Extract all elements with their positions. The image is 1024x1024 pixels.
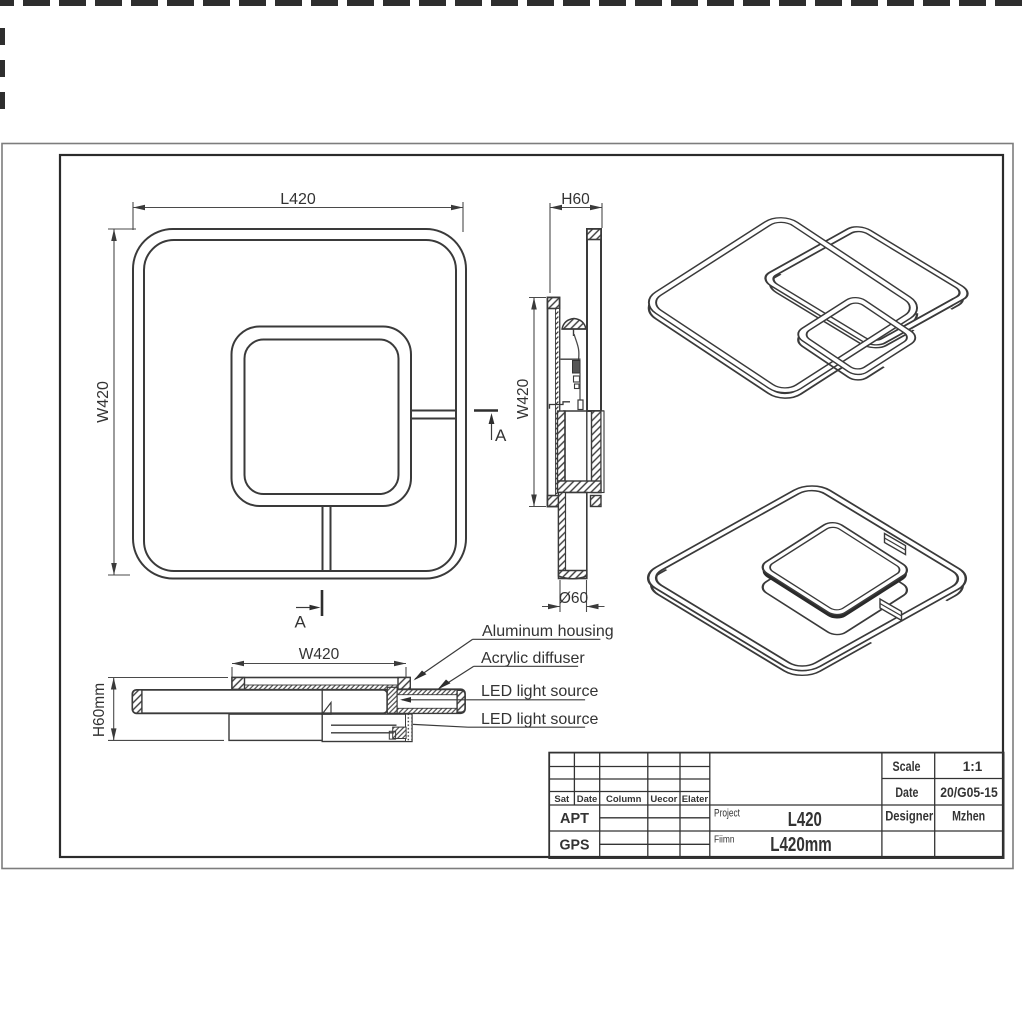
svg-text:Acrylic diffuser: Acrylic diffuser xyxy=(481,650,585,667)
svg-text:Column: Column xyxy=(606,794,642,805)
svg-text:Aluminum housing: Aluminum housing xyxy=(482,623,614,640)
svg-text:APT: APT xyxy=(560,811,589,827)
svg-text:1:1: 1:1 xyxy=(963,759,983,774)
svg-text:H60: H60 xyxy=(561,191,590,208)
svg-text:W420: W420 xyxy=(515,378,532,419)
svg-text:Mzhen: Mzhen xyxy=(952,809,985,824)
svg-text:LED light source: LED light source xyxy=(481,711,598,728)
svg-text:L420: L420 xyxy=(280,191,316,208)
svg-text:A: A xyxy=(295,613,307,632)
svg-text:GPS: GPS xyxy=(560,838,590,854)
svg-text:Elater: Elater xyxy=(682,794,709,805)
svg-text:Ø60: Ø60 xyxy=(559,590,589,607)
svg-text:Date: Date xyxy=(577,794,598,805)
svg-text:Date: Date xyxy=(895,785,918,800)
svg-text:A: A xyxy=(495,426,507,445)
svg-text:LED light source: LED light source xyxy=(481,683,598,700)
svg-text:Project: Project xyxy=(714,808,740,820)
svg-text:H60mm: H60mm xyxy=(91,683,108,737)
svg-text:W420: W420 xyxy=(299,646,340,663)
svg-text:20/G05-15: 20/G05-15 xyxy=(940,785,998,800)
svg-text:W420: W420 xyxy=(95,381,112,423)
svg-text:Sat: Sat xyxy=(554,794,570,805)
svg-text:Designer: Designer xyxy=(885,809,934,824)
svg-text:Uecor: Uecor xyxy=(650,794,677,805)
svg-text:Scale: Scale xyxy=(893,759,921,774)
svg-text:Fiimn: Fiimn xyxy=(714,834,735,846)
svg-text:L420: L420 xyxy=(788,808,822,831)
svg-text:L420mm: L420mm xyxy=(770,833,832,856)
